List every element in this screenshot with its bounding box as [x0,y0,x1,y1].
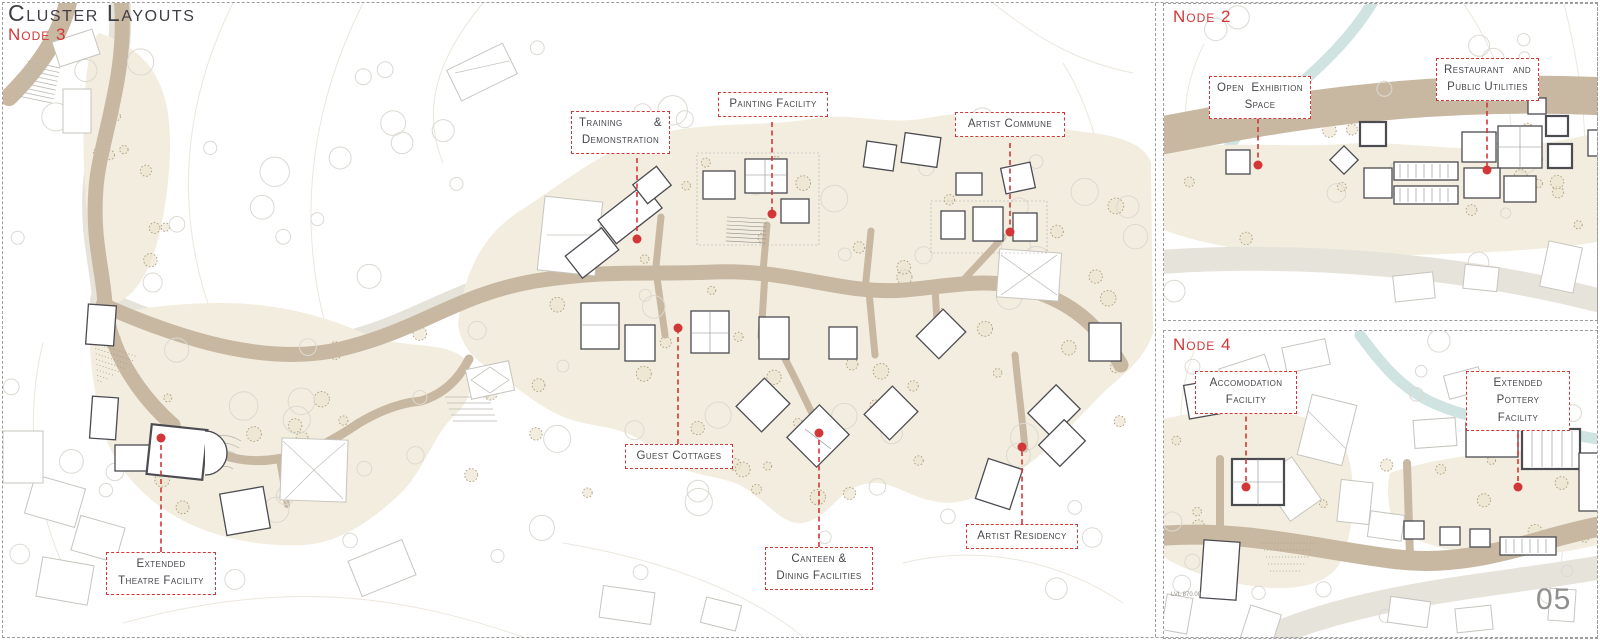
callout-restaurant-public-utilities: Restaurantand Public Utilities [1436,58,1539,101]
node2-title: Node 2 [1173,7,1231,27]
page-title: Cluster Layouts [8,0,196,27]
callout-guest-cottages: Guest Cottages [625,444,733,469]
callout-canteen-dining: Canteen & Dining Facilities [765,547,873,590]
callout-extended-theatre: Extended Theatre Facility [106,552,216,595]
callout-open-exhibition-space: OpenExhibition Space [1209,76,1311,119]
lower-road [1164,259,1597,300]
panel-node2 [1163,3,1598,321]
callout-extended-pottery-facility: Extended Pottery Facility [1466,371,1570,431]
callout-accommodation-facility: Accomodation Facility [1195,371,1297,414]
callout-painting-facility: Painting Facility [718,92,828,117]
level-label: LVL 870.00 [1171,592,1201,598]
callout-artist-commune: Artist Commune [955,112,1065,137]
node4-title: Node 4 [1173,335,1231,355]
callout-training-demonstration: Training& Demonstration [571,111,670,154]
callout-artist-residency: Artist Residency [966,524,1078,549]
node3-title: Node 3 [8,25,66,45]
page-number: 05 [1536,583,1571,617]
node2-map [1164,4,1597,320]
sheet: Cluster Layouts Node 3 Node 2 Node 4 Tra… [0,0,1600,640]
